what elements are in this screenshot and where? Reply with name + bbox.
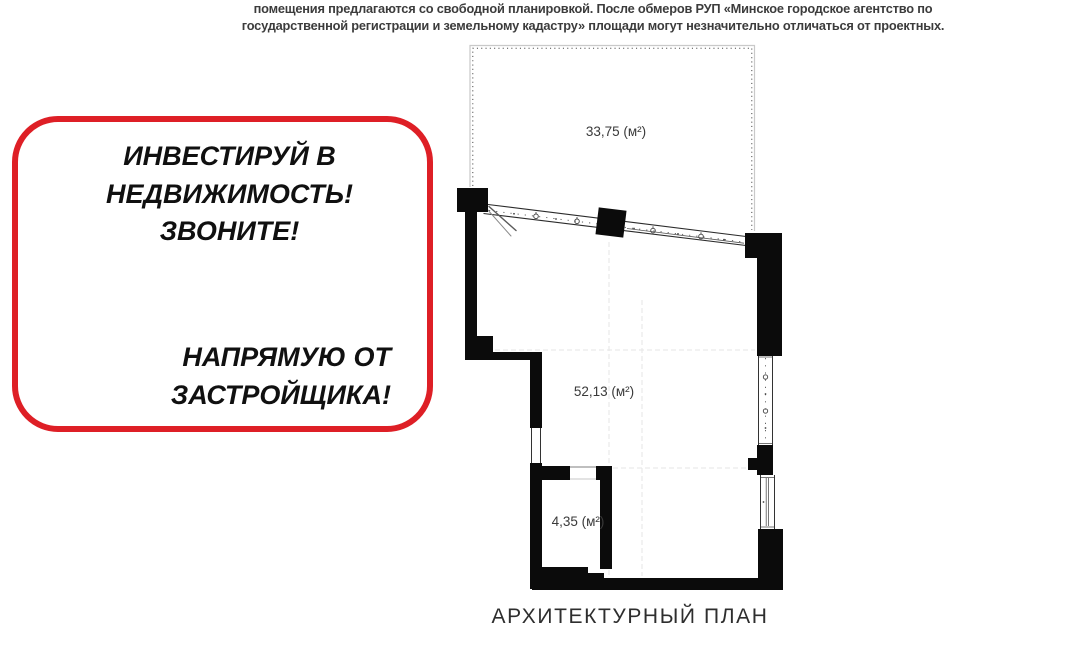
window-right-lower — [761, 475, 775, 529]
window-right-upper — [759, 356, 773, 445]
column — [595, 207, 626, 237]
ad-badge-bottom-block: НАПРЯМУЮ ОТ ЗАСТРОЙЩИКА! — [44, 339, 401, 414]
ad-line-developer: ЗАСТРОЙЩИКА! — [44, 377, 391, 415]
ad-badge-top-block: ИНВЕСТИРУЙ В НЕДВИЖИМОСТЬ! ЗВОНИТЕ! — [44, 138, 401, 251]
ad-line-realty: НЕДВИЖИМОСТЬ! — [58, 176, 401, 214]
entrance-door-swing — [487, 207, 516, 237]
area-label-main-room: 52,13 (м²) — [574, 384, 634, 399]
disclaimer-text: помещения предлагаются со свободной план… — [242, 1, 944, 34]
floor-plan: 33,75 (м²) 52,13 (м²) 4,35 (м²) — [440, 38, 820, 598]
construction-grid-lines — [479, 242, 755, 576]
plan-caption: АРХИТЕКТУРНЫЙ ПЛАН — [440, 605, 820, 629]
ad-line-invest: ИНВЕСТИРУЙ В — [58, 138, 401, 176]
ad-line-call: ЗВОНИТЕ! — [58, 213, 401, 251]
ad-badge: ИНВЕСТИРУЙ В НЕДВИЖИМОСТЬ! ЗВОНИТЕ! НАПР… — [12, 116, 433, 432]
ad-line-direct: НАПРЯМУЮ ОТ — [44, 339, 391, 377]
window-left — [532, 428, 541, 463]
area-label-terrace: 33,75 (м²) — [586, 124, 646, 139]
bathroom-door-opening — [570, 467, 596, 479]
real-estate-ad-page: { "disclaimer": { "lines": [ "помещения … — [0, 0, 1073, 663]
area-label-bathroom: 4,35 (м²) — [552, 514, 605, 529]
disclaimer-line-1: помещения предлагаются со свободной план… — [242, 1, 944, 18]
floor-plan-drawing: 33,75 (м²) 52,13 (м²) 4,35 (м²) — [440, 38, 820, 598]
disclaimer-line-2: государственной регистрации и земельному… — [242, 18, 944, 35]
